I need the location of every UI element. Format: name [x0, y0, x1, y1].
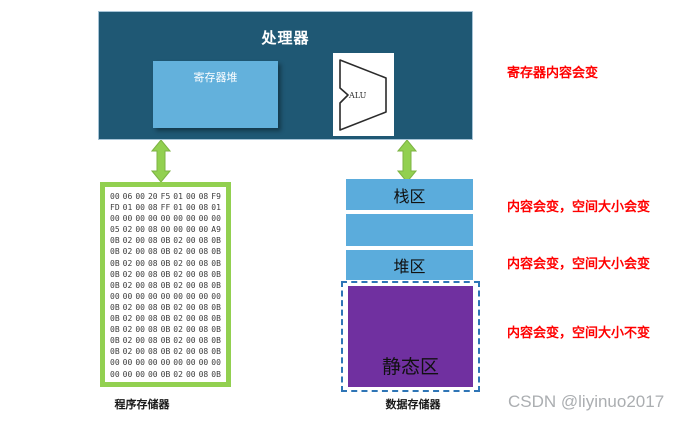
hex-row: 000000000000000000: [110, 357, 221, 368]
hex-row: 0502000800000000A9: [110, 224, 221, 235]
hex-row: 0B0200080B0200080B: [110, 335, 221, 346]
heap-area-box: 堆区: [346, 250, 473, 280]
static-annotation: 内容会变，空间大小不变: [507, 322, 650, 341]
free-area-box: [346, 214, 473, 246]
stack-area-box: 栈区: [346, 179, 473, 210]
hex-row: 0B0200080B0200080B: [110, 280, 221, 291]
register-file-label: 寄存器堆: [153, 69, 278, 85]
hex-row: 0B0200080B0200080B: [110, 258, 221, 269]
static-area-dashed-border: 静态区: [341, 281, 480, 392]
heap-annotation: 内容会变，空间大小会变: [507, 253, 650, 272]
hex-row: 0B0200080B0200080B: [110, 269, 221, 280]
hex-row: 0B0200080B0200080B: [110, 246, 221, 257]
processor-data-memory-arrow-icon: [397, 140, 417, 182]
hex-row: 000000000000000000: [110, 213, 221, 224]
alu-box: ALU: [333, 53, 394, 136]
data-memory-label: 数据存储器: [363, 396, 463, 412]
heap-area-label: 堆区: [393, 253, 425, 277]
hex-row: 0B0200080B0200080B: [110, 346, 221, 357]
csdn-watermark: CSDN @liyinuo2017: [508, 392, 664, 412]
hex-row: 000000000000000000: [110, 291, 221, 302]
stack-annotation: 内容会变，空间大小会变: [507, 196, 650, 215]
alu-icon: ALU: [333, 53, 394, 136]
static-area-box: 静态区: [348, 286, 473, 387]
program-memory-label: 程序存储器: [102, 396, 182, 412]
alu-label: ALU: [348, 91, 367, 100]
hex-row: 0B0200080B0200080B: [110, 302, 221, 313]
processor-title: 处理器: [99, 27, 472, 48]
register-file-box: 寄存器堆: [153, 61, 278, 128]
processor-program-memory-arrow-icon: [151, 140, 171, 182]
processor-box: 处理器 寄存器堆 ALU: [98, 11, 473, 140]
program-memory-box: 00060020F5010008F9FD010008FF010008010000…: [100, 182, 231, 387]
static-area-label: 静态区: [382, 352, 439, 379]
hex-row: 0B0200080B0200080B: [110, 324, 221, 335]
hex-row: 000000000B0200080B: [110, 369, 221, 380]
hex-row: 00060020F5010008F9: [110, 191, 221, 202]
memory-architecture-diagram: 处理器 寄存器堆 ALU 00060020F5010008F9FD010008F…: [0, 0, 692, 422]
hex-dump: 00060020F5010008F9FD010008FF010008010000…: [105, 189, 226, 382]
hex-row: 0B0200080B0200080B: [110, 235, 221, 246]
register-annotation: 寄存器内容会变: [507, 62, 598, 81]
stack-area-label: 栈区: [393, 183, 425, 207]
hex-row: 0B0200080B0200080B: [110, 313, 221, 324]
hex-row: FD010008FF01000801: [110, 202, 221, 213]
